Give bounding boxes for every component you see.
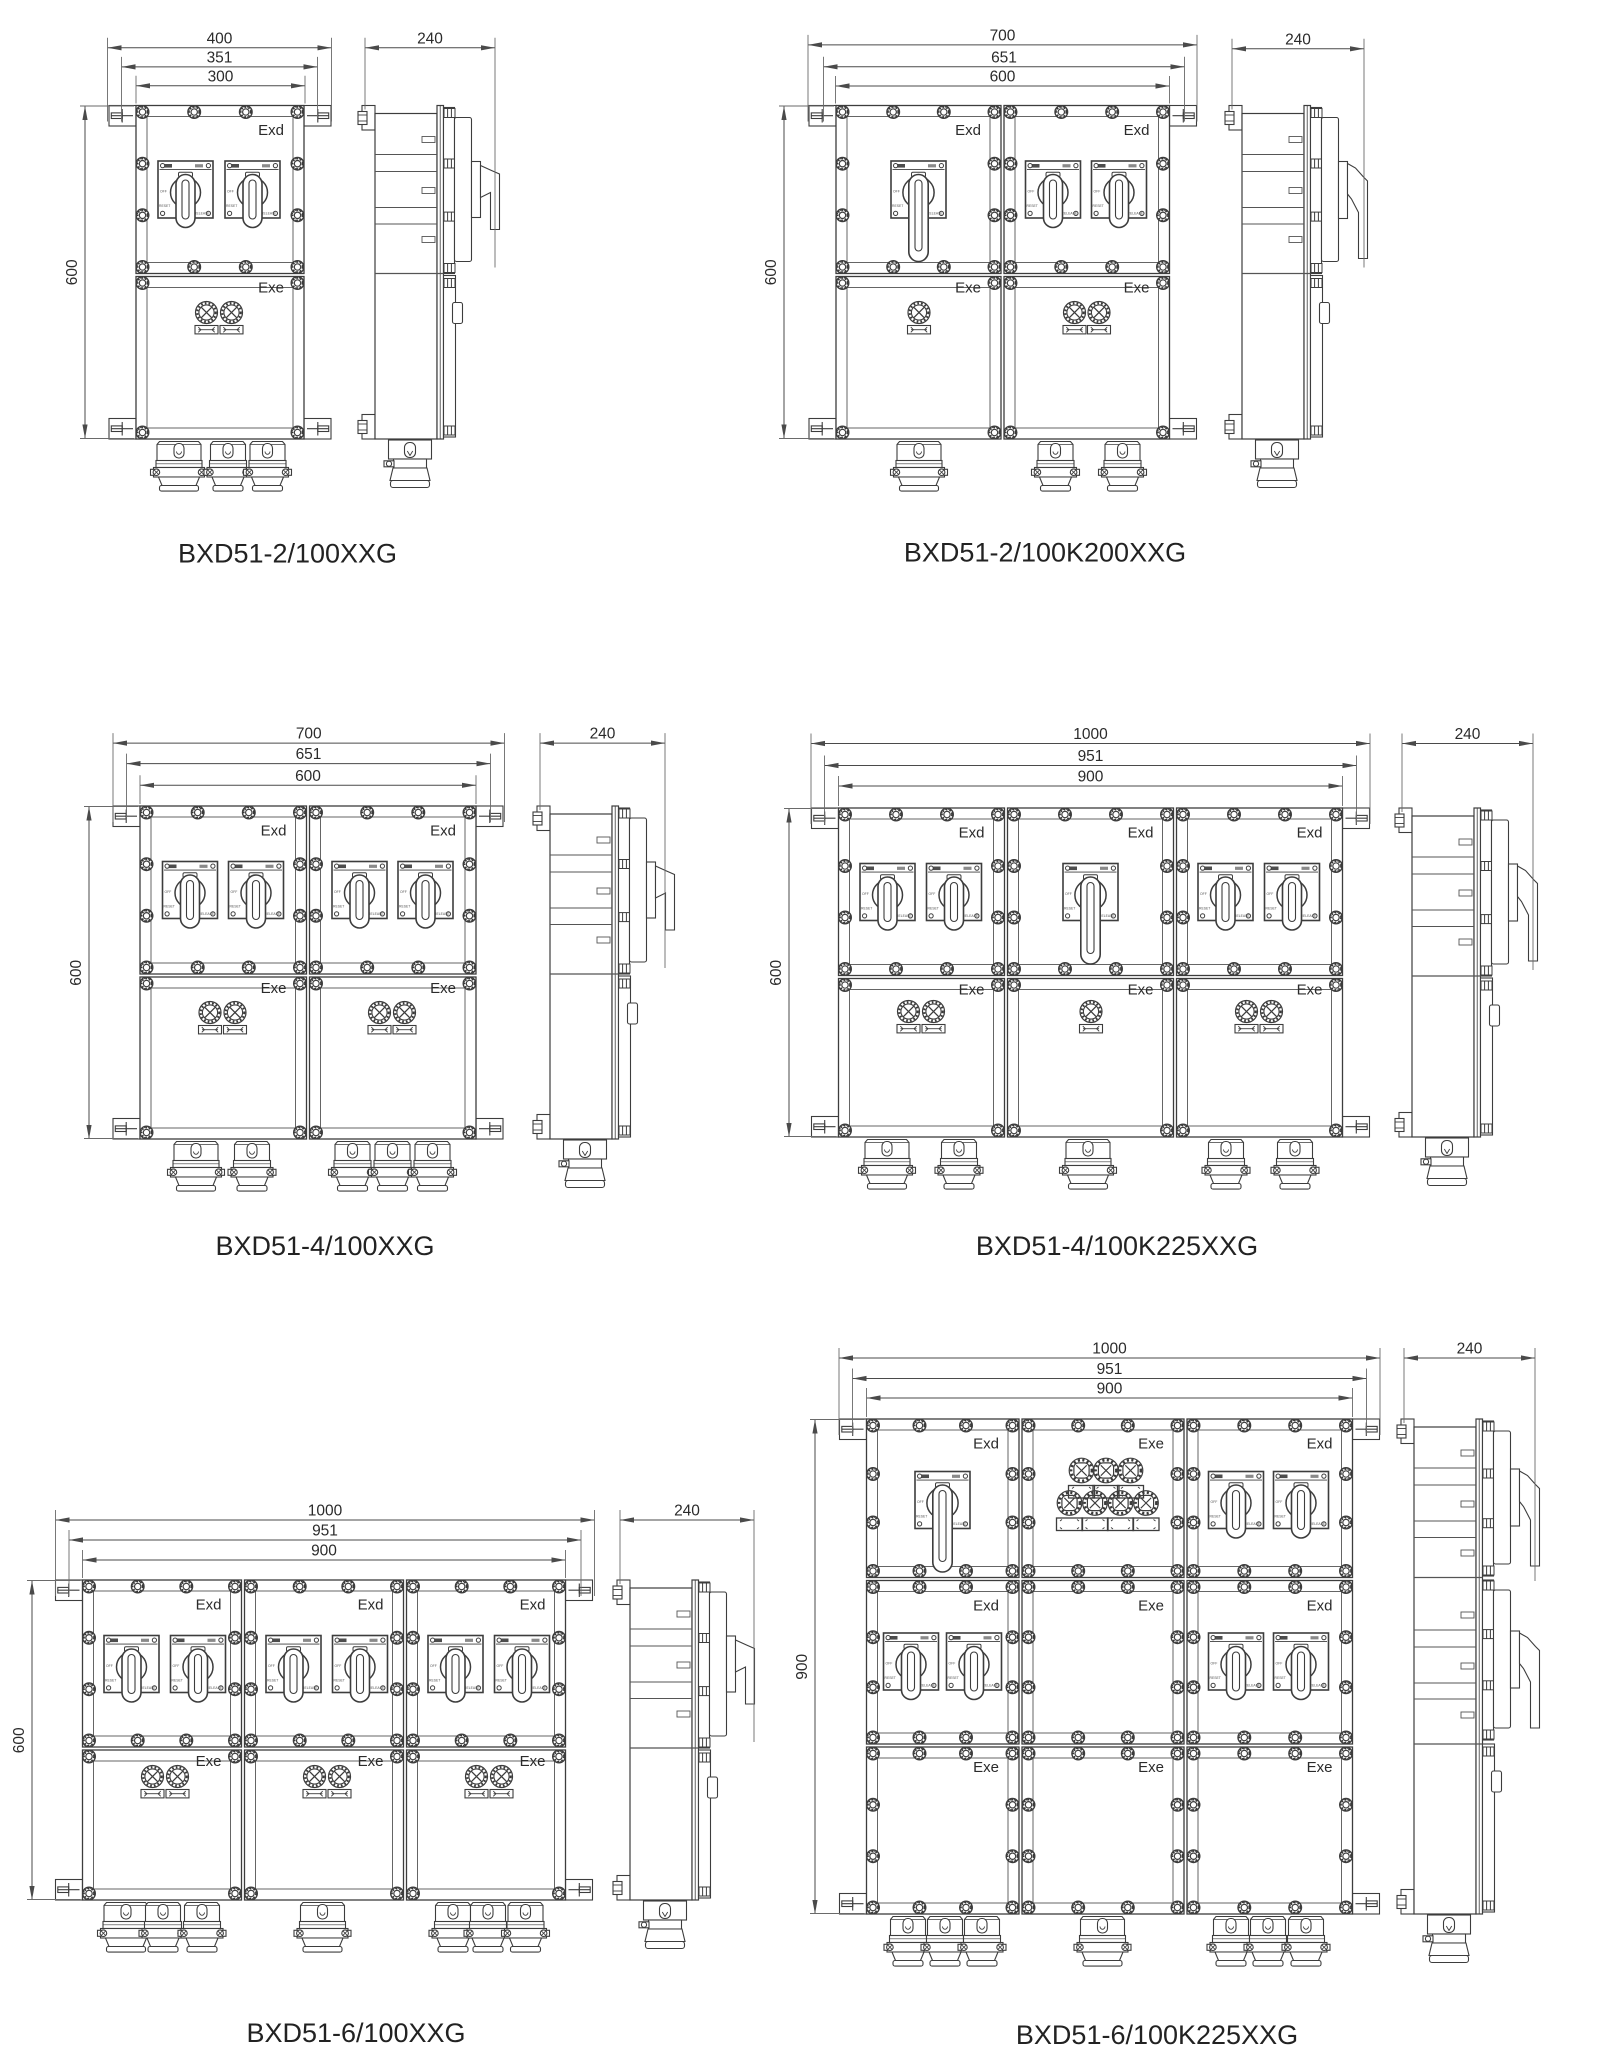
svg-text:600: 600 xyxy=(990,69,1016,86)
svg-text:Exd: Exd xyxy=(1297,825,1323,842)
svg-text:Exd: Exd xyxy=(1128,825,1154,842)
svg-text:Exe: Exe xyxy=(261,980,287,997)
svg-text:600: 600 xyxy=(763,259,780,285)
svg-text:1000: 1000 xyxy=(1073,726,1108,743)
svg-text:Exd: Exd xyxy=(1307,1436,1333,1453)
svg-text:Exd: Exd xyxy=(973,1436,999,1453)
svg-text:240: 240 xyxy=(674,1503,700,1520)
svg-text:BXD51-2/100K200XXG: BXD51-2/100K200XXG xyxy=(904,538,1186,568)
svg-text:Exe: Exe xyxy=(1138,1598,1164,1615)
svg-text:Exd: Exd xyxy=(261,823,287,840)
svg-text:Exd: Exd xyxy=(430,823,456,840)
svg-text:1000: 1000 xyxy=(1092,1341,1127,1358)
svg-text:Exd: Exd xyxy=(520,1597,546,1614)
svg-text:Exe: Exe xyxy=(1138,1759,1164,1776)
svg-text:1000: 1000 xyxy=(308,1503,343,1520)
svg-text:400: 400 xyxy=(207,30,233,47)
svg-text:BXD51-6/100XXG: BXD51-6/100XXG xyxy=(246,2018,465,2048)
svg-text:Exe: Exe xyxy=(1307,1759,1333,1776)
svg-text:Exe: Exe xyxy=(258,280,284,297)
svg-text:Exd: Exd xyxy=(959,825,985,842)
svg-text:BXD51-2/100XXG: BXD51-2/100XXG xyxy=(178,539,397,569)
svg-text:900: 900 xyxy=(794,1653,811,1679)
svg-text:700: 700 xyxy=(296,726,322,743)
svg-text:Exe: Exe xyxy=(1128,982,1154,999)
svg-text:Exd: Exd xyxy=(196,1597,222,1614)
svg-text:240: 240 xyxy=(1455,726,1481,743)
svg-text:900: 900 xyxy=(1078,769,1104,786)
svg-text:Exe: Exe xyxy=(955,280,981,297)
svg-text:240: 240 xyxy=(590,726,616,743)
svg-text:BXD51-4/100K225XXG: BXD51-4/100K225XXG xyxy=(976,1231,1258,1261)
svg-text:600: 600 xyxy=(68,959,85,985)
svg-text:Exd: Exd xyxy=(955,122,981,139)
svg-text:Exe: Exe xyxy=(358,1753,384,1770)
svg-text:240: 240 xyxy=(1285,31,1311,48)
svg-text:600: 600 xyxy=(64,259,81,285)
svg-text:Exd: Exd xyxy=(358,1597,384,1614)
svg-text:Exe: Exe xyxy=(1124,280,1150,297)
svg-text:651: 651 xyxy=(991,49,1017,66)
svg-text:240: 240 xyxy=(1457,1341,1483,1358)
svg-text:Exd: Exd xyxy=(1124,122,1150,139)
svg-text:600: 600 xyxy=(11,1727,28,1753)
svg-text:300: 300 xyxy=(208,68,234,85)
svg-text:951: 951 xyxy=(312,1523,338,1540)
svg-text:900: 900 xyxy=(311,1543,337,1560)
svg-text:651: 651 xyxy=(296,746,322,763)
svg-text:Exe: Exe xyxy=(430,980,456,997)
svg-text:Exd: Exd xyxy=(973,1598,999,1615)
svg-text:BXD51-6/100K225XXG: BXD51-6/100K225XXG xyxy=(1016,2020,1298,2050)
svg-text:951: 951 xyxy=(1097,1361,1123,1378)
svg-text:Exe: Exe xyxy=(1297,982,1323,999)
svg-text:Exe: Exe xyxy=(959,982,985,999)
svg-text:BXD51-4/100XXG: BXD51-4/100XXG xyxy=(215,1231,434,1261)
svg-text:951: 951 xyxy=(1078,748,1104,765)
svg-text:900: 900 xyxy=(1097,1381,1123,1398)
svg-text:Exe: Exe xyxy=(196,1753,222,1770)
svg-text:600: 600 xyxy=(295,768,321,785)
svg-text:700: 700 xyxy=(990,27,1016,44)
svg-text:Exd: Exd xyxy=(258,122,284,139)
svg-text:240: 240 xyxy=(417,30,443,47)
svg-text:Exe: Exe xyxy=(973,1759,999,1776)
svg-text:Exd: Exd xyxy=(1307,1598,1333,1615)
svg-text:351: 351 xyxy=(207,49,233,66)
svg-text:Exe: Exe xyxy=(520,1753,546,1770)
svg-text:600: 600 xyxy=(768,959,785,985)
svg-text:Exe: Exe xyxy=(1138,1436,1164,1453)
